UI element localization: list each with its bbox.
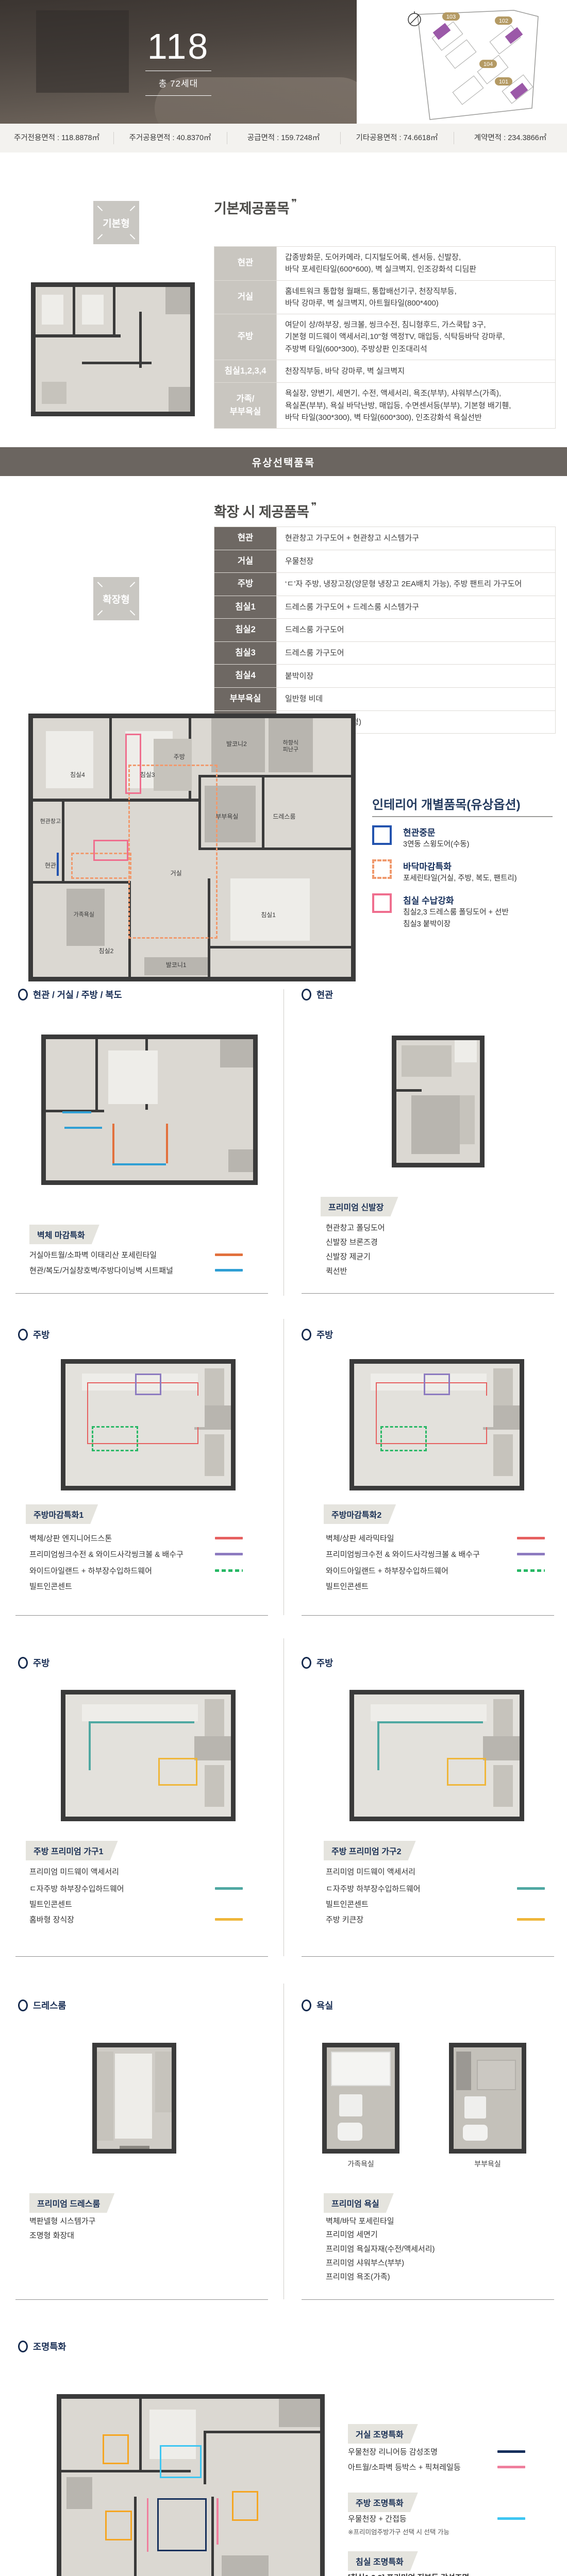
circle-icon [18, 989, 28, 1001]
divider [302, 1615, 554, 1616]
color-chip [517, 1569, 545, 1572]
home-bar-cabinet-mark [158, 1758, 198, 1785]
table-row: 침실1드레스룸 가구도어 + 드레스룸 시스템가구 [214, 596, 556, 619]
picture-rail-mark [147, 2498, 149, 2552]
bedroom-storage-overlay [93, 840, 128, 861]
lighting-plan [57, 2394, 325, 2576]
feature-item: 프리미엄 세면기 [326, 2229, 545, 2240]
room-label: 침실2 [99, 947, 114, 955]
kitchen-finish-plan-2 [349, 1359, 524, 1490]
paid-option-band: 유상선택품목 [0, 447, 567, 476]
circle-icon [302, 1329, 311, 1341]
column-divider [283, 1319, 284, 1615]
wall-finish-plan [41, 1035, 258, 1185]
type-badge-basic: 기본형 [93, 201, 139, 244]
hardware-mark [377, 1721, 483, 1723]
feature-tag: 거실 조명특화 [348, 2424, 418, 2444]
legend-desc: 침실2,3 드레스룸 폴딩도어 + 선반 침실3 붙박이장 [403, 907, 509, 930]
table-row: 가족/ 부부욕실욕실장, 양변기, 세면기, 수전, 액세서리, 욕조(부부),… [214, 383, 556, 429]
porcelain-tile-mark [166, 1124, 168, 1163]
color-chip [215, 1553, 243, 1555]
wide-island-mark [92, 1426, 138, 1451]
shower-booth [477, 2060, 516, 2090]
column-divider [283, 1984, 284, 2299]
type-badge-label: 확장형 [103, 592, 129, 606]
site-plan-graphic: 103 102 104 101 [357, 0, 567, 124]
divider [145, 95, 211, 96]
table-row: 침실3드레스룸 가구도어 [214, 641, 556, 665]
feature-item: 빌트인콘센트 [29, 1581, 243, 1591]
table-row: 주방‘ㄷ’자 주방, 냉장고장(양문형 냉장고 2EA배치 가능), 주방 팬트… [214, 573, 556, 596]
floor-finish-overlay [128, 765, 218, 938]
hero: 118 총 72세대 [0, 0, 567, 124]
entry-door-overlay [57, 853, 59, 876]
table-row: 침실1,2,3,4천장직부등, 바닥 강마루, 벽 실크벽지 [214, 360, 556, 383]
feature-item: 벽판넬형 시스템가구 [29, 2215, 243, 2226]
area-item: 공급면적 : 159.7248㎡ [227, 124, 340, 152]
room-label: 하향식 피난구 [283, 740, 298, 753]
divider [15, 1293, 268, 1294]
page: 118 총 72세대 [0, 0, 567, 2576]
section-header: 주방 [18, 1328, 49, 1341]
feature-item: 벽체/상판 세라믹타일 [326, 1533, 545, 1544]
porcelain-tile-mark [112, 1124, 114, 1163]
bedroom-storage-legend-icon [372, 893, 392, 913]
quote-icon: ❞ [311, 501, 316, 512]
section-header: 조명특화 [18, 2340, 66, 2353]
legend-name: 현관중문 [403, 825, 436, 838]
feature-tag: 프리미엄 드레스룸 [29, 2193, 114, 2213]
color-chip [215, 1269, 243, 1272]
feature-item: 프리미엄 욕실자재(수전/액세서리) [326, 2243, 545, 2254]
area-item: 주거공용면적 : 40.8370㎡ [113, 124, 227, 152]
hardware-mark [89, 1721, 194, 1723]
svg-text:102: 102 [499, 18, 508, 24]
washbasin [464, 2096, 486, 2119]
feature-item: 프리미엄 욕조(가족) [326, 2271, 545, 2282]
feature-item: 벽체/바닥 포세린타일 [326, 2215, 545, 2226]
entry-plan [392, 1036, 485, 1167]
tall-cabinet-mark [447, 1758, 487, 1785]
color-chip [517, 1887, 545, 1890]
svg-text:101: 101 [499, 79, 508, 85]
picture-rail-mark [216, 2498, 219, 2545]
feature-tag: 침실 조명특화 [348, 2551, 418, 2571]
table-row: 부부욕실일반형 비데 [214, 687, 556, 710]
color-chip [215, 1887, 243, 1890]
bedroom-storage-overlay [125, 734, 141, 793]
section-header: 주방 [302, 1656, 333, 1669]
type-badge-expanded: 확장형 [93, 577, 139, 620]
color-chip [497, 2517, 525, 2520]
feature-item: 아트월/소파벽 등박스 + 픽쳐레일등 [348, 2462, 525, 2472]
area-item: 주거전용면적 : 118.8878㎡ [0, 124, 113, 152]
room-label: 거실 [171, 870, 182, 877]
legend-name: 바닥마감특화 [403, 859, 452, 872]
room-label: 드레스룸 [273, 813, 295, 820]
divider [372, 816, 553, 817]
master-bath-plan [449, 2043, 526, 2154]
feature-tag: 주방 프리미엄 가구1 [26, 1841, 118, 1860]
kitchen-light-mark [160, 2445, 202, 2479]
feature-item: 홈바형 장식장 [29, 1914, 243, 1925]
feature-item: 신발장 제균기 [326, 1251, 542, 1262]
feature-item: ㄷ자주방 하부장수입하드웨어 [29, 1883, 243, 1894]
circle-icon [18, 1999, 28, 2011]
column-divider [283, 989, 284, 1296]
room-label: 발코니1 [166, 961, 187, 969]
washbasin [339, 2094, 362, 2116]
circle-icon [302, 1999, 311, 2011]
feature-item: 조명형 화장대 [29, 2230, 243, 2241]
quote-icon: ❞ [291, 198, 297, 209]
room-label: 침실3 [140, 771, 155, 778]
hardware-mark [89, 1721, 91, 1770]
living-light-mark [157, 2498, 207, 2551]
divider [15, 2299, 268, 2300]
feature-tag: 주방마감특화2 [324, 1504, 396, 1524]
color-chip [517, 1537, 545, 1539]
kitchen-furniture-plan-1 [61, 1690, 236, 1821]
table-row: 침실4붙박이장 [214, 665, 556, 688]
feature-item: 프리미엄 미드웨이 액세서리 [326, 1866, 545, 1877]
svg-text:104: 104 [483, 61, 493, 67]
basic-items-title: 기본제공품목❞ [214, 197, 297, 217]
room-label: 발코니2 [226, 740, 247, 748]
wide-island-mark [380, 1426, 426, 1451]
legend-name: 침실 수납강화 [403, 893, 454, 906]
feature-item: [침실1,2,3] 프리미엄 직부등 감성조명 [348, 2572, 525, 2576]
floor-finish-legend-icon [372, 859, 392, 879]
feature-item: 프리미엄 미드웨이 액세서리 [29, 1866, 243, 1877]
circle-icon [18, 1329, 28, 1341]
section-header: 현관 [302, 988, 333, 1001]
color-chip [215, 1918, 243, 1921]
feature-tag: 프리미엄 신발장 [321, 1197, 398, 1216]
sink-faucet-mark [135, 1374, 161, 1395]
room-label: 현관 [45, 862, 56, 869]
feature-item: 주방 키큰장 [326, 1914, 545, 1925]
entry-door-legend-icon [372, 825, 392, 845]
feature-item: 벽체/상판 엔지니어드스톤 [29, 1533, 243, 1544]
type-badge-label: 기본형 [103, 216, 129, 230]
room-label: 부부욕실 [215, 813, 238, 820]
table-row: 거실홈네트워크 통합형 월패드, 통합배선기구, 천장직부등, 바닥 강마루, … [214, 280, 556, 314]
area-item: 계약면적 : 234.3866㎡ [454, 124, 567, 152]
feature-item: 신발장 브론즈경 [326, 1236, 542, 1247]
table-row: 현관현관창고 가구도어 + 현관창고 시스템가구 [214, 527, 556, 550]
table-row: 주방여닫이 상/하부장, 씽크볼, 씽크수전, 침니형후드, 가스쿡탑 3구, … [214, 314, 556, 360]
basic-items-table: 현관갑종방화문, 도어카메라, 디지털도어록, 센서등, 신발장, 바닥 포세린… [214, 246, 556, 429]
feature-item: ㄷ자주방 하부장수입하드웨어 [326, 1883, 545, 1894]
circle-icon [18, 1657, 28, 1669]
feature-item: 와이드아일랜드 + 하부장수입하드웨어 [326, 1565, 545, 1576]
table-row: 현관갑종방화문, 도어카메라, 디지털도어록, 센서등, 신발장, 바닥 포세린… [214, 247, 556, 281]
feature-item: 프리미엄씽크수전 & 와이드사각씽크볼 & 배수구 [29, 1549, 243, 1560]
bath-label: 가족욕실 [347, 2159, 374, 2169]
table-row: 침실2드레스룸 가구도어 [214, 619, 556, 642]
kitchen-furniture-plan-2 [349, 1690, 524, 1821]
section-header: 드레스룸 [18, 1999, 66, 2012]
feature-item: 프리미엄씽크수전 & 와이드사각씽크볼 & 배수구 [326, 1549, 545, 1560]
divider [302, 1956, 554, 1957]
table-row: 거실우물천장 [214, 550, 556, 573]
circle-icon [302, 989, 311, 1001]
room-label: 주방 [174, 753, 185, 760]
svg-text:103: 103 [446, 14, 456, 20]
family-bath-plan [322, 2043, 399, 2154]
column-divider [283, 1638, 284, 1956]
circle-icon [302, 1657, 311, 1669]
dressroom-plan [92, 2043, 176, 2154]
feature-tag: 벽체 마감특화 [29, 1225, 99, 1244]
sheet-panel-mark [64, 1127, 102, 1129]
kitchen-finish-plan-1 [61, 1359, 236, 1490]
bedroom-light-mark [103, 2434, 129, 2464]
feature-item: 우물천장 + 간접등 [348, 2513, 525, 2524]
window [456, 2052, 471, 2090]
feature-tag: 주방마감특화1 [26, 1504, 98, 1524]
divider [15, 1615, 268, 1616]
interior-options-title: 인테리어 개별품목(유상옵션) [372, 794, 556, 812]
basic-floor-plan [31, 282, 195, 416]
feature-item: 거실아트월/소파벽 이태리산 포세린타일 [29, 1249, 243, 1260]
bath-label: 부부욕실 [474, 2159, 501, 2169]
room-label: 현관창고 [40, 818, 61, 825]
bedroom-light-mark [105, 2511, 131, 2540]
divider [145, 71, 211, 71]
circle-icon [18, 2341, 28, 2352]
feature-item: 현관창고 폴딩도어 [326, 1222, 542, 1233]
expanded-floor-plan: 침실4 침실3 주방 발코니2 하향식 피난구 부부욕실 드레스룸 현관창고 현… [28, 714, 356, 981]
feature-item: 프리미엄 샤워부스(부부) [326, 2257, 545, 2268]
feature-item: 빌트인콘센트 [326, 1899, 545, 1909]
hero-photo: 118 총 72세대 [0, 0, 357, 124]
toilet [463, 2125, 488, 2141]
divider [302, 1293, 554, 1294]
color-chip [517, 1918, 545, 1921]
section-header: 주방 [302, 1328, 333, 1341]
hardware-mark [377, 1721, 379, 1770]
feature-tag: 프리미엄 욕실 [324, 2193, 394, 2213]
color-chip [517, 1553, 545, 1555]
bathtub [331, 2052, 391, 2086]
section-header: 주방 [18, 1656, 49, 1669]
total-units: 총 72세대 [159, 76, 198, 89]
section-header: 욕실 [302, 1999, 333, 2012]
divider [15, 1956, 268, 1957]
area-item: 기타공용면적 : 74.6618㎡ [340, 124, 454, 152]
bedroom-light-mark [232, 2491, 258, 2521]
room-label: 가족욕실 [73, 911, 94, 918]
room-label: 침실4 [70, 771, 85, 778]
sheet-panel-mark [62, 1111, 91, 1113]
feature-item: 퀵선반 [326, 1265, 542, 1276]
color-chip [215, 1537, 243, 1539]
color-chip [497, 2450, 525, 2453]
divider [302, 2299, 554, 2300]
feature-tag: 주방 조명특화 [348, 2493, 418, 2512]
feature-tag: 주방 프리미엄 가구2 [324, 1841, 416, 1860]
section-header: 현관 / 거실 / 주방 / 복도 [18, 988, 122, 1001]
expand-items-title: 확장 시 제공품목❞ [214, 501, 316, 521]
site-plan: 103 102 104 101 [357, 0, 567, 124]
room-label: 침실1 [261, 911, 276, 918]
color-chip [215, 1253, 243, 1256]
feature-item: 빌트인콘센트 [29, 1899, 243, 1909]
legend-desc: 3연동 스윙도어(수동) [403, 839, 469, 851]
option-note: ※프리미엄주방가구 선택 시 선택 가능 [348, 2527, 449, 2536]
toilet [338, 2123, 362, 2141]
feature-item: 현관/복도/거실창호벽/주방다이닝벽 시트패널 [29, 1265, 243, 1276]
feature-item: 와이드아일랜드 + 하부장수입하드웨어 [29, 1565, 243, 1576]
expand-items-table: 현관현관창고 가구도어 + 현관창고 시스템가구 거실우물천장 주방‘ㄷ’자 주… [214, 527, 556, 734]
feature-item: 우물천장 리니어등 감성조명 [348, 2446, 525, 2457]
sheet-panel-mark [112, 1163, 166, 1165]
unit-type-number: 118 [147, 28, 210, 64]
sink-faucet-mark [424, 1374, 450, 1395]
legend-desc: 포세린타일(거실, 주방, 복도, 팬트리) [403, 873, 517, 885]
area-summary-strip: 주거전용면적 : 118.8878㎡ 주거공용면적 : 40.8370㎡ 공급면… [0, 124, 567, 152]
color-chip [215, 1569, 243, 1572]
feature-item: 빌트인콘센트 [326, 1581, 545, 1591]
color-chip [497, 2466, 525, 2468]
